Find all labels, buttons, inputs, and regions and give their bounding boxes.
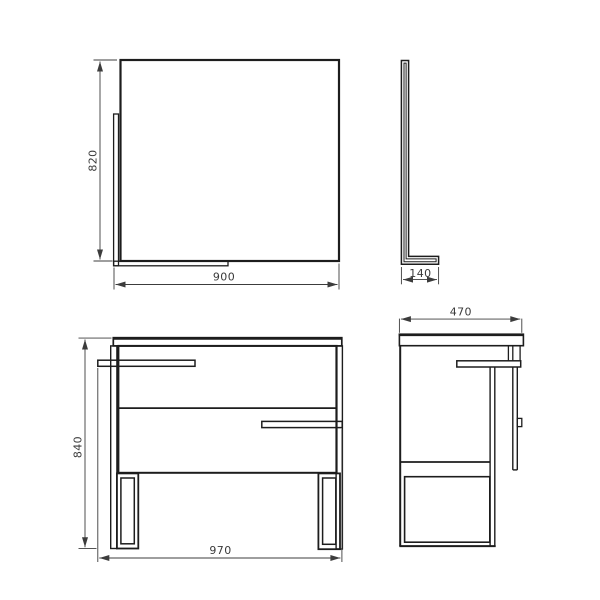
foot-left-outer bbox=[117, 473, 138, 548]
mirror-front-view: 820 900 bbox=[86, 60, 339, 290]
cabinet-body bbox=[118, 346, 336, 473]
drawer-handle-side bbox=[457, 361, 521, 367]
foot-side-inner bbox=[405, 477, 490, 543]
technical-drawing-canvas: 820 900 140 bbox=[0, 0, 600, 600]
drawing-svg: 820 900 140 bbox=[0, 0, 600, 600]
dim-label-cabinet-depth: 470 bbox=[450, 306, 472, 319]
cabinet-side-view: 470 bbox=[399, 306, 524, 546]
dim-label-cabinet-width: 970 bbox=[209, 544, 231, 557]
dim-label-mirror-height: 820 bbox=[86, 149, 99, 171]
drawer-handle-bottom bbox=[262, 421, 342, 427]
dim-label-mirror-depth: 140 bbox=[409, 267, 431, 280]
dim-cabinet-depth bbox=[399, 319, 521, 333]
mirror-shelf-bracket-vertical bbox=[114, 114, 119, 266]
leg-left bbox=[111, 346, 117, 549]
mirror-outline bbox=[121, 60, 340, 261]
cabinet-front-view: 840 970 bbox=[71, 338, 342, 562]
dim-label-mirror-width: 900 bbox=[213, 271, 235, 284]
foot-left-inner bbox=[121, 478, 134, 544]
drawer-handle-top bbox=[98, 360, 195, 366]
foot-right-inner bbox=[323, 478, 336, 544]
dim-label-cabinet-height: 840 bbox=[71, 436, 84, 458]
mirror-side-view: 140 bbox=[401, 61, 438, 285]
mirror-side-profile-outer bbox=[401, 61, 438, 265]
